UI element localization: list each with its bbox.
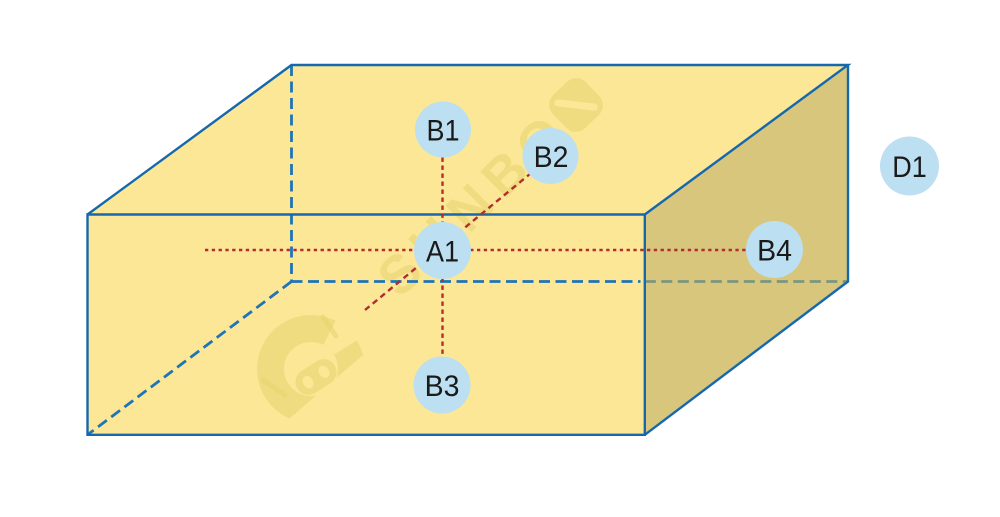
svg-text:B2: B2 xyxy=(534,141,569,174)
svg-text:A1: A1 xyxy=(426,235,459,269)
svg-text:B4: B4 xyxy=(757,235,792,268)
svg-text:B3: B3 xyxy=(425,370,460,403)
svg-text:D1: D1 xyxy=(892,151,926,185)
svg-text:B1: B1 xyxy=(426,114,459,148)
